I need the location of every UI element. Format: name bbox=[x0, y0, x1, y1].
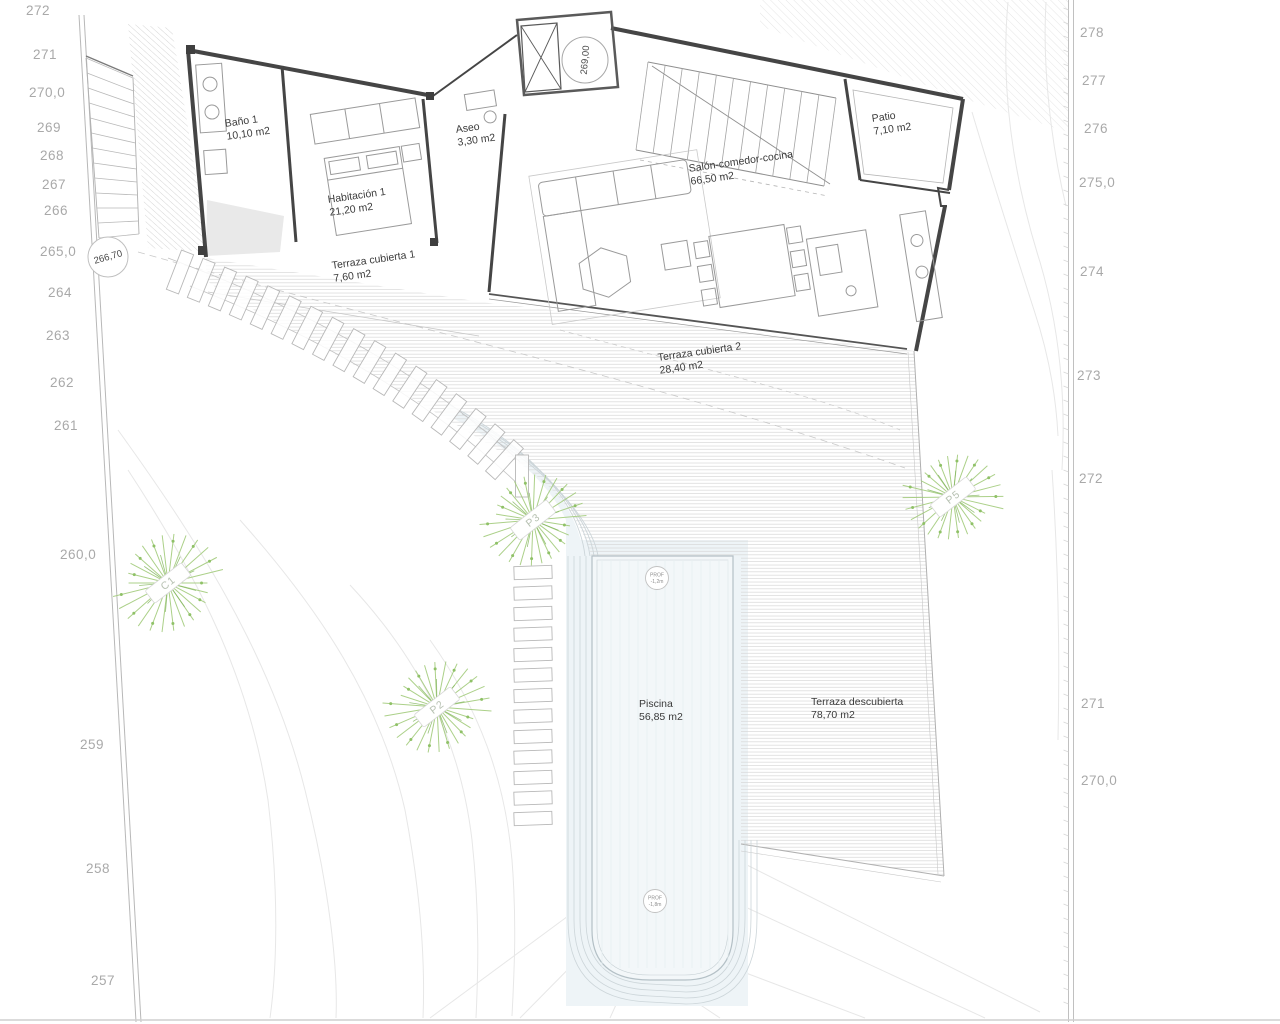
contour-elevation-label-left: 265,0 bbox=[40, 244, 76, 259]
contour-elevation-label-left: 268 bbox=[40, 148, 64, 163]
svg-text:PROF: PROF bbox=[648, 896, 662, 902]
contour-elevation-label-left: 263 bbox=[46, 328, 70, 343]
room-label-terraza-descubierta: Terraza descubierta78,70 m2 bbox=[811, 696, 903, 722]
contour-elevation-label-right: 278 bbox=[1080, 25, 1104, 40]
spot-elevation-266: 266,70 bbox=[88, 237, 128, 277]
svg-text:-1,8m: -1,8m bbox=[649, 902, 662, 908]
site-plan-canvas: C1P3P2P5 bbox=[0, 0, 1280, 1024]
contour-elevation-label-right: 271 bbox=[1081, 696, 1105, 711]
svg-text:-1,2m: -1,2m bbox=[651, 579, 664, 585]
wardrobe bbox=[310, 98, 419, 144]
contour-elevation-label-left: 272 bbox=[26, 3, 50, 18]
contour-elevation-label-right: 273 bbox=[1077, 368, 1101, 383]
contour-elevation-label-left: 262 bbox=[50, 375, 74, 390]
contour-elevation-label-left: 260,0 bbox=[60, 547, 96, 562]
contour-elevation-label-right: 270,0 bbox=[1081, 773, 1117, 788]
contour-elevation-label-left: 261 bbox=[54, 418, 78, 433]
contour-elevation-label-right: 277 bbox=[1082, 73, 1106, 88]
patio-inner-line bbox=[853, 90, 953, 183]
contour-elevation-label-left: 269 bbox=[37, 120, 61, 135]
contour-elevation-label-right: 274 bbox=[1080, 264, 1104, 279]
contour-elevation-label-right: 275,0 bbox=[1079, 175, 1115, 190]
contour-elevation-label-left: 259 bbox=[80, 737, 104, 752]
contour-elevation-label-left: 258 bbox=[86, 861, 110, 876]
boundary-tick-marks bbox=[1064, 8, 1069, 1004]
contour-elevation-label-left: 266 bbox=[44, 203, 68, 218]
kitchen-counter bbox=[900, 211, 943, 322]
kitchen-island bbox=[806, 230, 877, 316]
contour-elevation-label-left: 271 bbox=[33, 47, 57, 62]
contour-elevation-label-left: 264 bbox=[48, 285, 72, 300]
svg-text:PROF: PROF bbox=[650, 573, 664, 579]
contour-elevation-label-right: 272 bbox=[1079, 471, 1103, 486]
dining-set bbox=[693, 222, 811, 310]
pool-depth-marker-1: PROF -1,2m bbox=[646, 567, 669, 590]
contour-elevation-label-right: 276 bbox=[1084, 121, 1108, 136]
room-label-aseo: Aseo3,30 m2 bbox=[455, 119, 496, 150]
pool-depth-marker-2: PROF -1,8m bbox=[644, 890, 667, 913]
contour-elevation-label-left: 267 bbox=[42, 177, 66, 192]
room-label-piscina: Piscina56,85 m2 bbox=[639, 698, 683, 724]
tree-symbol: P2 bbox=[383, 662, 492, 753]
pool-side-steps bbox=[514, 565, 552, 825]
contour-elevation-label-left: 257 bbox=[91, 973, 115, 988]
shaded-floor-patch bbox=[206, 200, 284, 256]
parcel-boundary-right bbox=[1069, 0, 1074, 1022]
tree-symbol: C1 bbox=[113, 534, 223, 632]
contour-elevation-label-left: 270,0 bbox=[29, 85, 65, 100]
room-label-patio: Patio7,10 m2 bbox=[871, 108, 912, 139]
exterior-stairs-strip bbox=[86, 56, 139, 238]
floor-plan-drawing: C1P3P2P5 bbox=[0, 0, 1280, 1024]
spot-elevation-269: 269,00 bbox=[562, 37, 608, 83]
